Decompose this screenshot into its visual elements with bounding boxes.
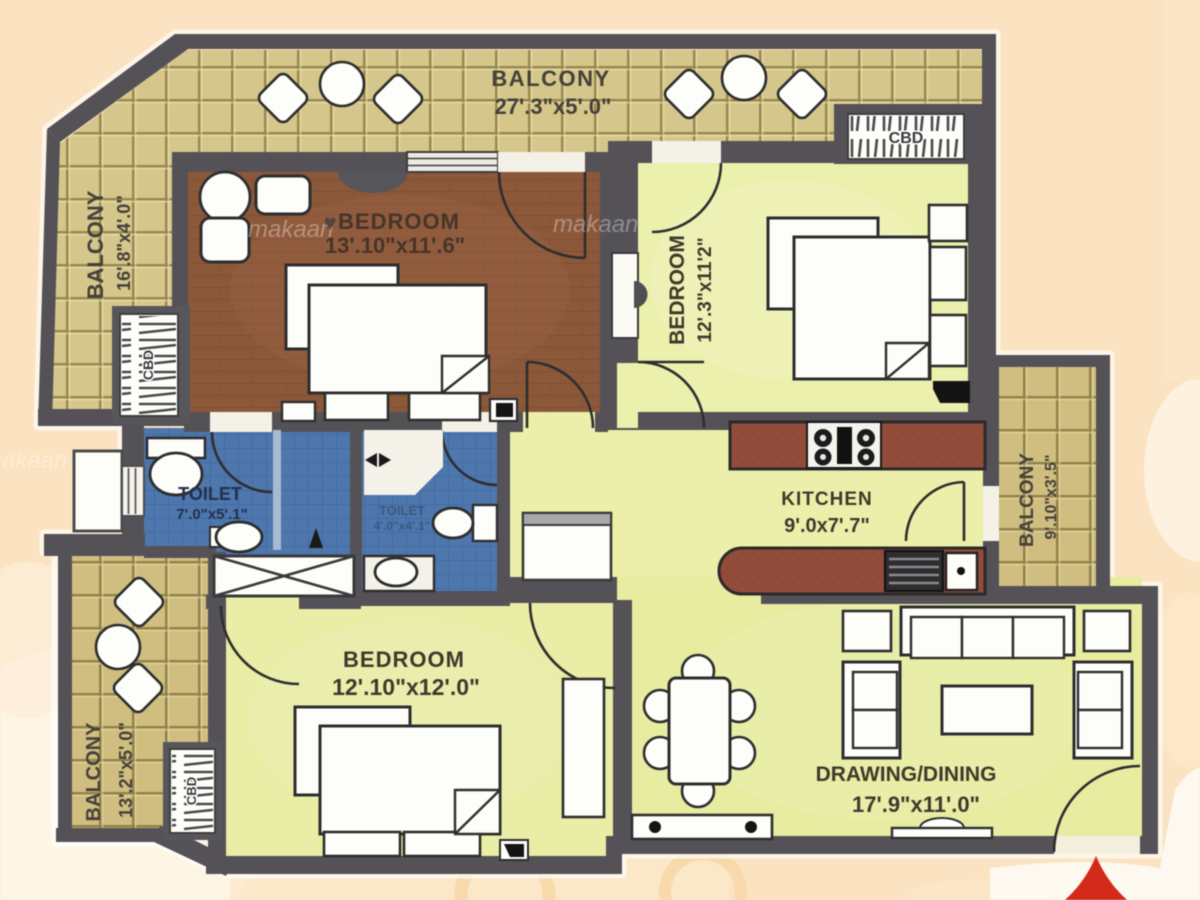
svg-text:12'.10"x12'.0": 12'.10"x12'.0" (332, 674, 480, 700)
svg-text:KITCHEN: KITCHEN (781, 489, 872, 510)
svg-text:CBD: CBD (889, 130, 924, 147)
svg-text:TOILET: TOILET (178, 484, 242, 504)
svg-text:16'.8"x4'.0": 16'.8"x4'.0" (114, 195, 134, 291)
svg-text:BALCONY: BALCONY (83, 190, 108, 299)
svg-text:13'.10"x11'.6": 13'.10"x11'.6" (325, 233, 465, 258)
svg-text:BEDROOM: BEDROOM (343, 647, 465, 672)
svg-text:BALCONY: BALCONY (1017, 453, 1038, 547)
svg-text:7'.0"x5'.1": 7'.0"x5'.1" (176, 506, 247, 523)
svg-text:27'.3"x5'.0": 27'.3"x5'.0" (495, 94, 612, 119)
svg-text:CBD: CBD (184, 777, 199, 805)
svg-text:4'.0"x4'.1": 4'.0"x4'.1" (373, 519, 430, 533)
svg-text:9'.0x7'.7": 9'.0x7'.7" (784, 515, 870, 537)
svg-text:DRAWING/DINING: DRAWING/DINING (816, 763, 997, 786)
svg-text:makaan: makaan (553, 211, 638, 238)
svg-text:CBD: CBD (140, 350, 156, 380)
svg-text:BEDROOM: BEDROOM (338, 209, 460, 234)
svg-text:17'.9"x11'.0": 17'.9"x11'.0" (852, 792, 980, 817)
svg-text:9'.10"x3'.5": 9'.10"x3'.5" (1043, 454, 1060, 539)
svg-text:BALCONY: BALCONY (83, 722, 105, 822)
svg-text:BEDROOM: BEDROOM (666, 235, 689, 345)
svg-text:BALCONY: BALCONY (491, 66, 610, 91)
svg-text:makaan: makaan (0, 447, 67, 474)
svg-text:13'.2"x5'.0": 13'.2"x5'.0" (116, 722, 136, 818)
svg-text:makaan: makaan (248, 216, 333, 243)
svg-text:♥: ♥ (323, 210, 336, 235)
svg-text:12'.3"x11'2": 12'.3"x11'2" (695, 237, 716, 342)
svg-text:TOILET: TOILET (379, 503, 425, 518)
